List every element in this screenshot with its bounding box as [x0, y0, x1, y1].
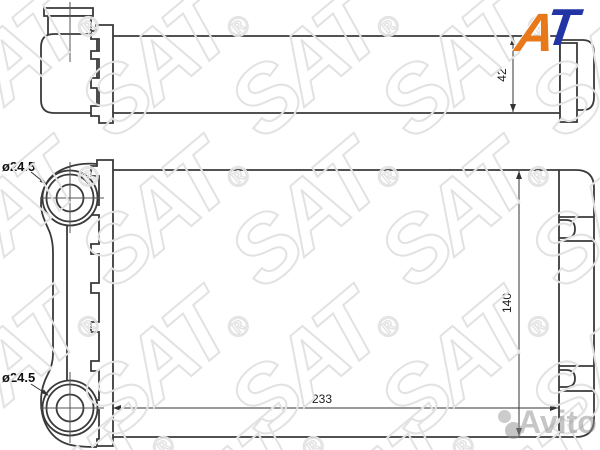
front-core-outline — [113, 170, 594, 437]
side-left-tank — [41, 34, 97, 113]
arrow-down-icon — [516, 428, 522, 436]
parts-catalog-image: 42 — [0, 0, 600, 450]
inlet-diameter-label: ø24.5 — [2, 159, 35, 174]
depth-dimension-label: 42 — [495, 68, 509, 82]
heater-core-technical-drawing: 42 — [0, 0, 600, 450]
width-dimension-label: 233 — [312, 392, 332, 406]
arrow-up-icon — [510, 37, 516, 45]
side-view: 42 — [41, 2, 594, 123]
tank-clip-tab — [559, 220, 575, 238]
front-view: 140 233 ø24.5 ø24.5 — [2, 159, 594, 447]
arrow-up-icon — [516, 171, 522, 179]
tank-clip-tab — [559, 370, 575, 387]
side-end-plate — [560, 43, 577, 122]
outlet-diameter-label: ø24.5 — [2, 370, 35, 385]
arrow-left-icon — [113, 405, 121, 411]
inlet-neck-flange — [44, 8, 93, 16]
arrow-right-icon — [550, 405, 558, 411]
height-dimension-label: 140 — [500, 293, 514, 313]
arrow-down-icon — [510, 104, 516, 112]
